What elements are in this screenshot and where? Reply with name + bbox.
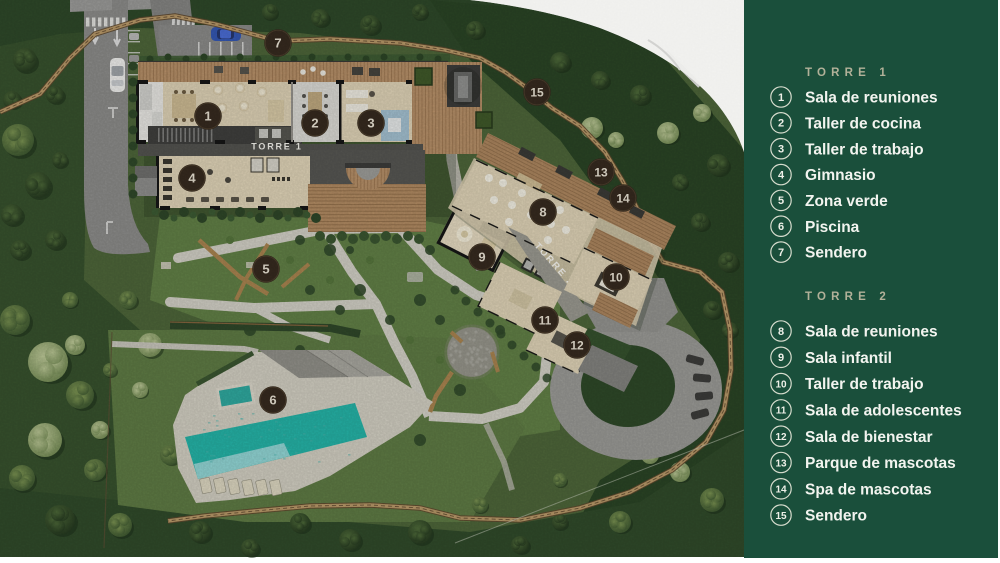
svg-text:Sendero: Sendero bbox=[805, 245, 867, 262]
svg-text:Parque de mascotas: Parque de mascotas bbox=[805, 455, 956, 472]
svg-text:TORRE 1: TORRE 1 bbox=[805, 67, 891, 79]
svg-text:Zona verde: Zona verde bbox=[805, 193, 888, 210]
svg-text:6: 6 bbox=[778, 221, 784, 233]
svg-text:Taller de trabajo: Taller de trabajo bbox=[805, 376, 924, 393]
svg-text:10: 10 bbox=[775, 379, 787, 390]
svg-text:Spa de mascotas: Spa de mascotas bbox=[805, 481, 932, 498]
svg-text:Sala de bienestar: Sala de bienestar bbox=[805, 429, 933, 446]
svg-text:15: 15 bbox=[775, 511, 787, 522]
svg-text:1: 1 bbox=[778, 92, 784, 104]
svg-text:9: 9 bbox=[778, 352, 784, 364]
svg-text:Sendero: Sendero bbox=[805, 508, 867, 525]
svg-text:TORRE 2: TORRE 2 bbox=[805, 291, 891, 303]
svg-text:11: 11 bbox=[776, 406, 787, 417]
svg-text:Gimnasio: Gimnasio bbox=[805, 167, 876, 184]
svg-text:13: 13 bbox=[775, 458, 787, 469]
svg-text:12: 12 bbox=[775, 432, 787, 443]
svg-text:Taller de cocina: Taller de cocina bbox=[805, 115, 921, 132]
svg-text:2: 2 bbox=[778, 118, 784, 130]
svg-text:Sala infantil: Sala infantil bbox=[805, 350, 892, 367]
svg-text:4: 4 bbox=[778, 169, 785, 181]
svg-text:Piscina: Piscina bbox=[805, 219, 860, 236]
svg-text:Sala de reuniones: Sala de reuniones bbox=[805, 324, 938, 341]
svg-text:Sala de adolescentes: Sala de adolescentes bbox=[805, 403, 962, 420]
svg-text:14: 14 bbox=[775, 485, 787, 496]
svg-text:Sala de reuniones: Sala de reuniones bbox=[805, 90, 938, 107]
svg-text:7: 7 bbox=[778, 247, 784, 259]
svg-text:5: 5 bbox=[778, 195, 784, 207]
svg-text:3: 3 bbox=[778, 144, 784, 156]
svg-text:Taller de trabajo: Taller de trabajo bbox=[805, 141, 924, 158]
svg-text:8: 8 bbox=[778, 326, 784, 338]
